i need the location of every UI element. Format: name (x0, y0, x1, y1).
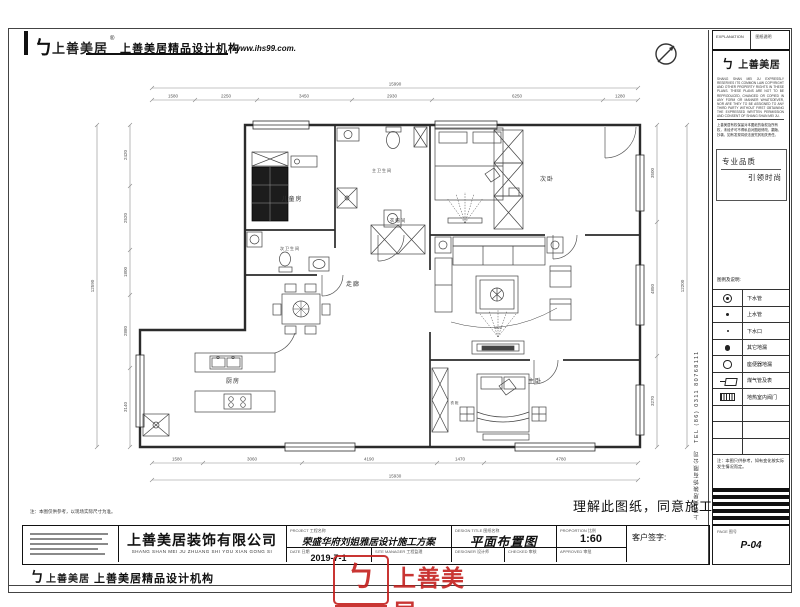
sidebar-copyright-en: SHANG SHAN MEI JU EXPRESSLY RESERVES ITS… (717, 77, 784, 119)
svg-text:3060: 3060 (247, 457, 258, 462)
svg-text:4850: 4850 (650, 283, 655, 294)
water-supply-pipe-icon (726, 313, 729, 316)
slogan-bottom: 引领时尚 (748, 172, 782, 183)
stamp-mark: ㄅ (335, 557, 387, 597)
room-label-cloakroom: 衣帽间 (390, 217, 407, 224)
header-accent-bar (24, 31, 28, 55)
sidebar: EXPLANATION 图纸说明 ㄅ 上善美居 SHANG SHAN MEI J… (712, 30, 790, 565)
legend-row: 地热室内阀门 (713, 388, 789, 406)
legend-row-empty (713, 438, 789, 456)
room-label-corridor: 走廊 (346, 280, 360, 288)
customer-signature-label: 客户签字: (632, 532, 666, 543)
svg-text:1280: 1280 (615, 94, 626, 99)
scale-value: 1:60 (556, 533, 626, 545)
dimension-lines (95, 86, 689, 482)
logo-reg-mark: ® (110, 36, 114, 42)
legend-row: 座便器地漏 (713, 355, 789, 373)
legend-row: 其它地漏 (713, 339, 789, 357)
room-label-bath-main: 主卫生间 (372, 167, 392, 173)
floor-plan: 15990 1580 2250 3450 2930 6250 1280 1580… (85, 70, 710, 510)
revision-bar (713, 509, 789, 513)
company-name: 上善美居装饰有限公司 (118, 530, 286, 550)
company-stamp: ㄅ 上善美居 (333, 543, 473, 607)
doors (275, 127, 636, 384)
page-number-label: PAGE 图号 (717, 529, 737, 535)
other-floor-drain-icon (725, 345, 731, 351)
legend-row: 下水口 (713, 322, 789, 340)
svg-text:15930: 15930 (389, 474, 402, 479)
footer-logo-name: 上善美居 (46, 570, 90, 585)
svg-text:6250: 6250 (512, 94, 523, 99)
page-number-box: PAGE 图号 P-04 (713, 524, 789, 565)
svg-text:4780: 4780 (556, 457, 567, 462)
sidebar-vertical-text: 上善美居装饰有限公司 TEL (86) 0311 80768111 (693, 45, 701, 520)
revision-bar (713, 502, 789, 506)
svg-text:4190: 4190 (364, 457, 375, 462)
svg-text:2930: 2930 (387, 94, 398, 99)
legend-title: 图例及说明: (717, 277, 741, 283)
page-number-value: P-04 (713, 540, 789, 551)
header-underline (86, 53, 228, 55)
wardrobe-cabinets (494, 130, 523, 229)
sidebar-logo-name: 上善美居 (738, 60, 780, 71)
svg-text:3450: 3450 (299, 94, 310, 99)
slogan-top: 专业品质 (722, 156, 756, 167)
revision-bar (713, 488, 789, 492)
svg-text:3500: 3500 (650, 167, 655, 178)
kitchen-counters (143, 353, 275, 436)
second-bathroom-fixtures (247, 232, 329, 272)
sidebar-header-en: EXPLANATION (713, 31, 751, 49)
sidebar-slogan-box: 专业品质 引领时尚 (716, 149, 787, 201)
floor-heating-valve-icon (720, 393, 735, 401)
svg-text:1470: 1470 (455, 457, 466, 462)
frame-left-line (8, 28, 9, 592)
svg-text:2880: 2880 (123, 325, 128, 336)
approved-label: APPROVED 审批 (560, 549, 591, 555)
bottom-note: 注：本图仅供参考，以现场实际尺寸为准。 (30, 509, 116, 515)
sidebar-header: EXPLANATION 图纸说明 (713, 31, 789, 51)
legend-row: 煤气管及表 (713, 372, 789, 390)
dimension-labels: 15990 1580 2250 3450 2930 6250 1280 1580… (90, 82, 685, 479)
room-label-master: 主卧 (528, 377, 542, 385)
second-bedroom-furniture (435, 128, 519, 223)
room-label-children: 儿童房 (281, 195, 302, 203)
drain-pipe-icon (723, 294, 732, 303)
footer-org-name: 上善美居精品设计机构 (94, 570, 214, 586)
sidebar-logo: ㄅ 上善美居 (713, 55, 789, 73)
revision-bar (713, 516, 789, 520)
frame-right-line (791, 28, 792, 592)
room-label-bedroom-second: 次卧 (540, 175, 554, 183)
svg-text:15990: 15990 (389, 82, 402, 87)
svg-text:2520: 2520 (123, 212, 128, 223)
logo-icon: ㄅ (722, 57, 734, 71)
revision-bar (713, 495, 789, 499)
logo-icon: ㄅ (30, 567, 44, 587)
room-label-wardrobe: 衣柜 (451, 400, 460, 405)
stamp-name: 上善美居 (393, 559, 473, 607)
svg-text:12590: 12590 (90, 279, 95, 292)
room-label-kitchen: 厨房 (226, 377, 240, 385)
svg-text:3270: 3270 (650, 395, 655, 406)
company-pinyin: SHANG SHAN MEI JU ZHUANG SHI YOU XIAN GO… (118, 549, 286, 554)
legend-row-empty (713, 405, 789, 423)
svg-text:12200: 12200 (680, 279, 685, 292)
svg-text:1800: 1800 (123, 266, 128, 277)
approval-note: 理解此图纸，同意施工 (573, 496, 713, 515)
frame-top-line (8, 28, 792, 29)
legend-table: 下水管 上水管 下水口 其它地漏 座便器地漏 煤气管及表 地热室内阀门 (713, 289, 789, 455)
main-bathroom-fixtures (337, 127, 427, 227)
sidebar-copyright-cn: 上善美居有权保留对本图纸的版权及所有权，未经许可不得私自对图纸修改、翻版、抄袭，… (717, 119, 784, 137)
legend-row-empty (713, 421, 789, 439)
svg-text:1580: 1580 (168, 94, 179, 99)
cloakroom-cabinet (371, 225, 425, 254)
sidebar-note: 注：本图只供参考，如有变化按实际发生情况而定。 (717, 458, 784, 471)
drain-outlet-icon (727, 330, 729, 332)
living-room-furniture (435, 237, 571, 354)
room-label-bath-second: 次卫生间 (280, 245, 300, 251)
dining-set (273, 284, 330, 334)
drawing-sheet: ㄅ 上善美居 ® 上善美居精品设计机构 www.ihs99.com. 15990 (0, 0, 800, 607)
sidebar-header-cn: 图纸说明 (751, 31, 790, 49)
gas-pipe-meter-icon (720, 377, 736, 385)
legend-row: 下水管 (713, 289, 789, 307)
toilet-floor-drain-icon (723, 360, 732, 369)
tb-sep (626, 526, 627, 562)
svg-text:1580: 1580 (172, 457, 183, 462)
svg-text:2250: 2250 (221, 94, 232, 99)
sidebar-double-border (708, 30, 709, 565)
svg-text:3140: 3140 (123, 401, 128, 412)
logo-icon: ㄅ (34, 33, 53, 60)
children-room-furniture (252, 152, 317, 221)
slogan-divider (721, 169, 781, 170)
stamp-logo-icon: ㄅ (333, 555, 389, 605)
checker-label: CHECKED 审核 (508, 549, 537, 555)
header-website: www.ihs99.com. (234, 44, 296, 53)
legend-row: 上水管 (713, 306, 789, 324)
svg-text:2420: 2420 (123, 149, 128, 160)
walls (140, 125, 640, 447)
